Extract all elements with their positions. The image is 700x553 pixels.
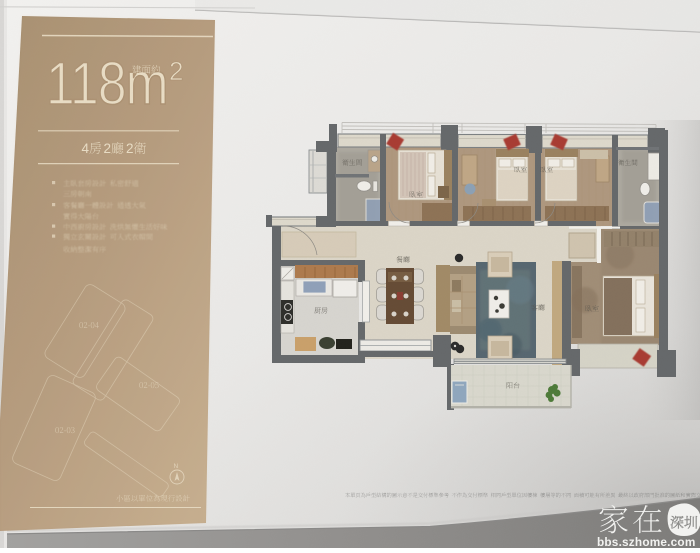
- svg-text:bbs.szhome.com: bbs.szhome.com: [597, 535, 696, 548]
